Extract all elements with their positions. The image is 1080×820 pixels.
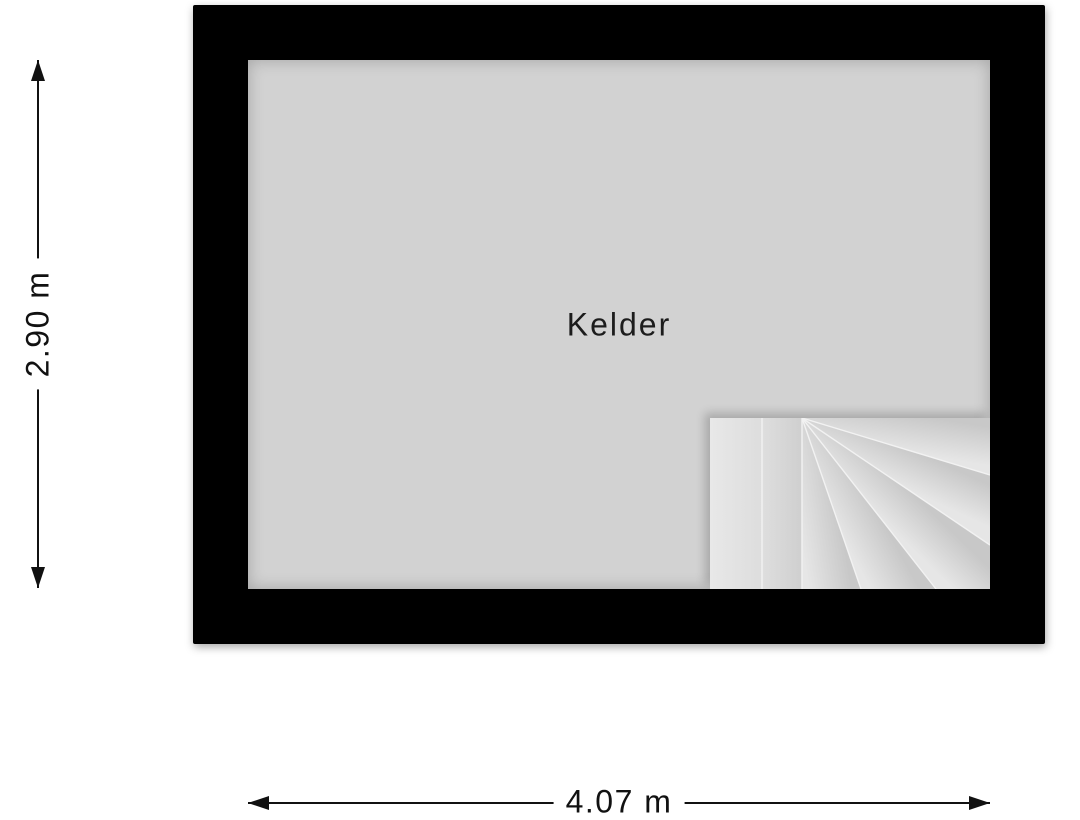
arrow-left-icon <box>248 796 269 810</box>
floorplan-canvas: Kelder <box>0 0 1080 813</box>
horizontal-dimension-label: 4.07 m <box>554 784 685 819</box>
arrow-right-icon <box>969 796 990 810</box>
room-label: Kelder <box>567 306 672 343</box>
stair-step <box>762 418 802 589</box>
basement-plan: Kelder <box>193 5 1045 644</box>
arrow-down-icon <box>31 567 45 588</box>
staircase-icon <box>710 418 990 589</box>
arrow-up-icon <box>31 60 45 81</box>
vertical-dimension-label: 2.90 m <box>20 259 55 390</box>
stair-step <box>710 418 762 589</box>
floor-area: Kelder <box>248 60 990 589</box>
